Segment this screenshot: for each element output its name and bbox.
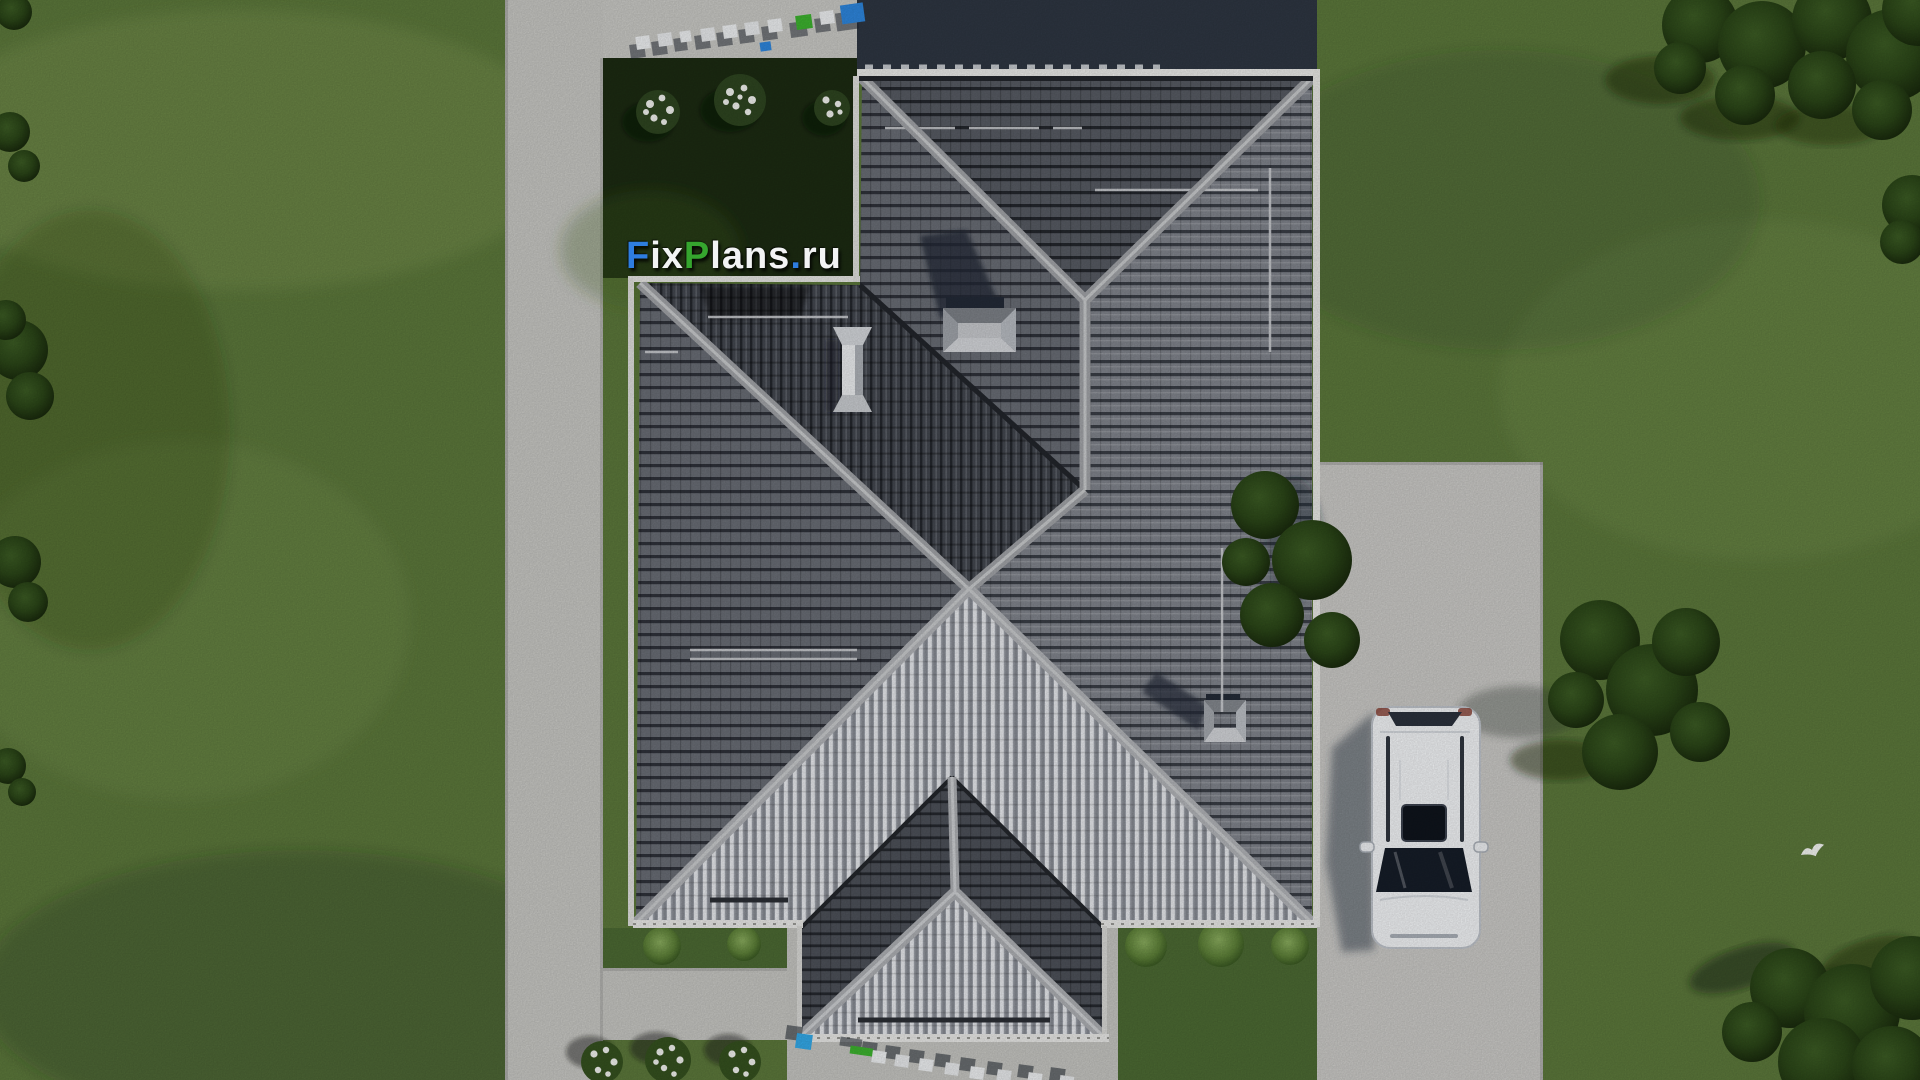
logo-part: F	[626, 237, 650, 275]
logo-part: ru	[802, 237, 842, 275]
watermark-logo: FixPlans.ru	[626, 237, 842, 275]
logo-part: .	[790, 237, 802, 275]
texture-overlay	[0, 0, 1920, 1080]
logo-part: lans	[710, 237, 790, 275]
scene-svg	[0, 0, 1920, 1080]
logo-part: P	[684, 237, 710, 275]
aerial-site-render: FixPlans.ru	[0, 0, 1920, 1080]
logo-part: ix	[650, 237, 684, 275]
